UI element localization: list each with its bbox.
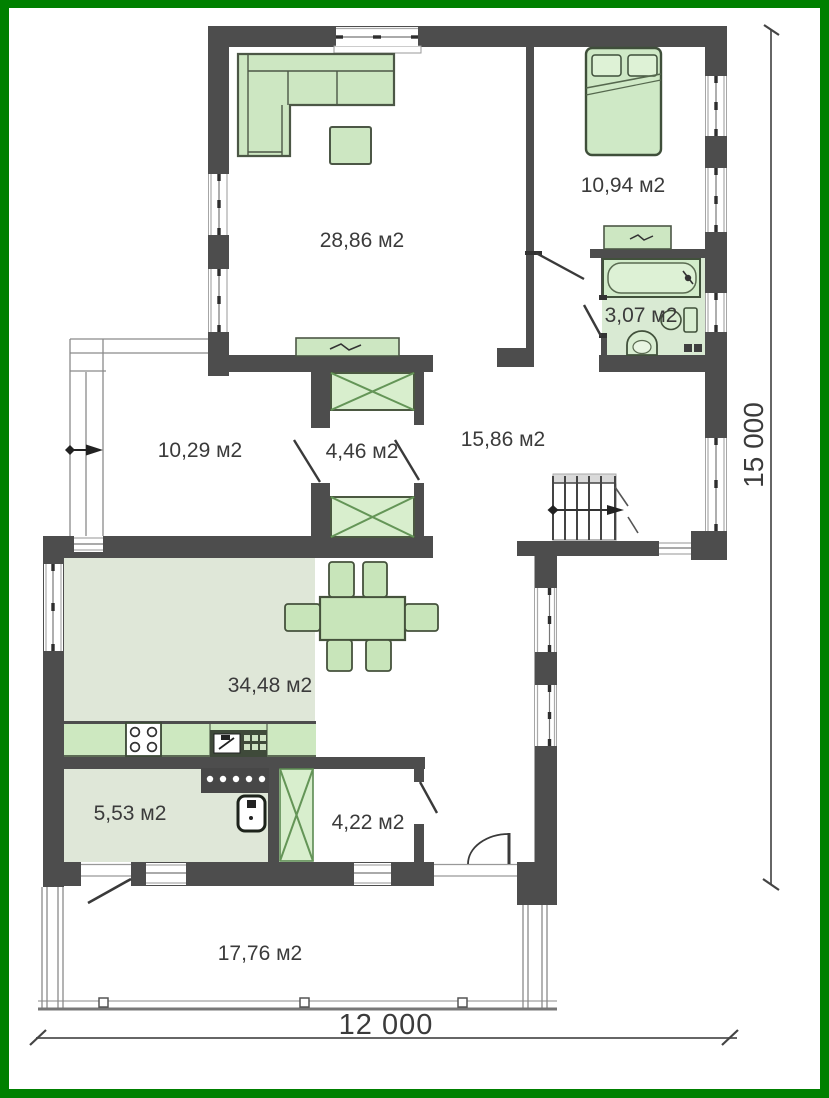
svg-text:10,29 м2: 10,29 м2 bbox=[158, 439, 243, 462]
svg-text:10,94 м2: 10,94 м2 bbox=[581, 174, 666, 197]
svg-text:4,22 м2: 4,22 м2 bbox=[332, 811, 405, 834]
svg-text:12 000: 12 000 bbox=[339, 1009, 434, 1041]
svg-text:3,07 м2: 3,07 м2 bbox=[605, 304, 678, 327]
svg-text:4,46 м2: 4,46 м2 bbox=[326, 440, 399, 463]
svg-text:34,48 м2: 34,48 м2 bbox=[228, 674, 313, 697]
svg-text:15,86 м2: 15,86 м2 bbox=[461, 428, 546, 451]
svg-text:5,53 м2: 5,53 м2 bbox=[94, 802, 167, 825]
svg-text:17,76 м2: 17,76 м2 bbox=[218, 942, 303, 965]
svg-text:28,86 м2: 28,86 м2 bbox=[320, 229, 405, 252]
svg-text:15 000: 15 000 bbox=[738, 402, 769, 488]
